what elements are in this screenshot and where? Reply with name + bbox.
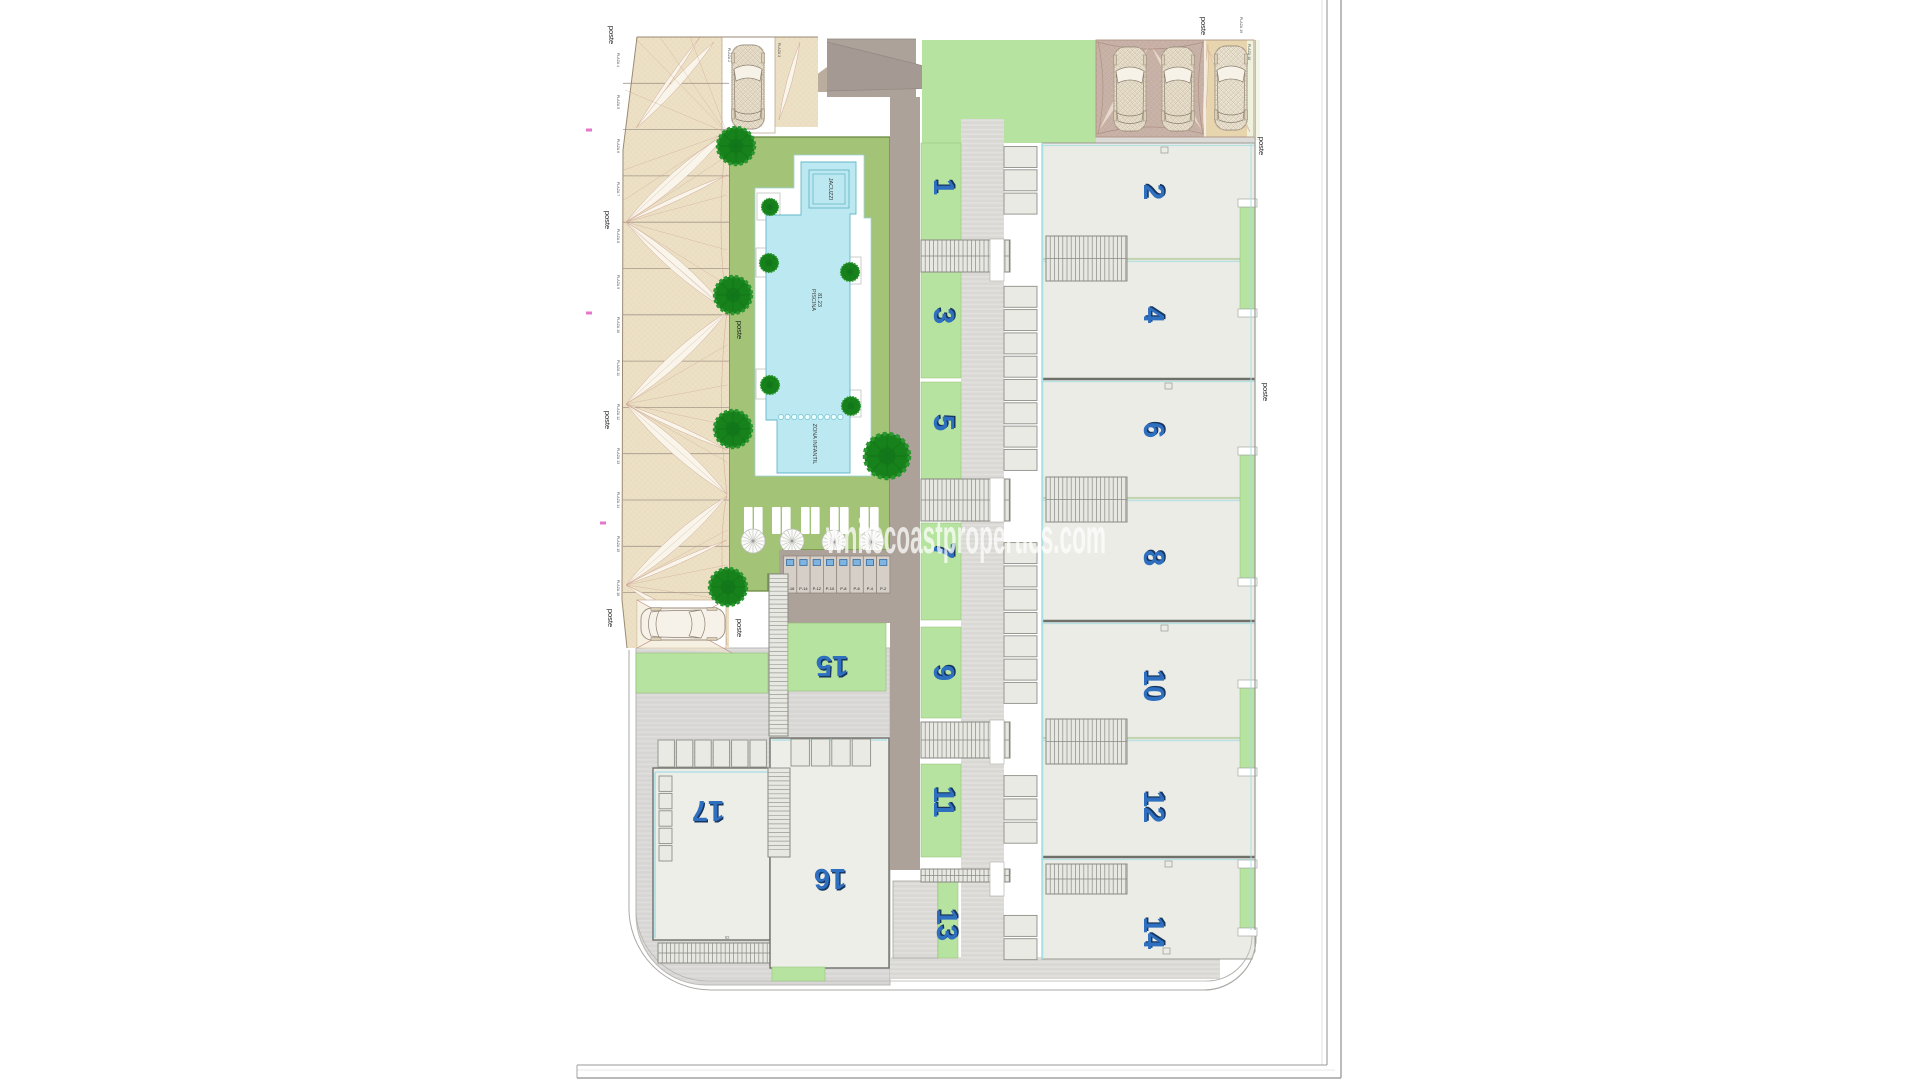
svg-text:poste: poste (603, 411, 612, 429)
svg-text:13: 13 (930, 909, 962, 941)
svg-text:PLAZA 4: PLAZA 4 (616, 53, 620, 67)
svg-text:15: 15 (816, 649, 848, 681)
svg-text:11: 11 (927, 787, 959, 818)
svg-text:17: 17 (692, 794, 724, 826)
svg-text:ZONA INFANTIL: ZONA INFANTIL (811, 424, 817, 465)
svg-text:PLAZA 2: PLAZA 2 (727, 48, 731, 62)
svg-text:P-14: P-14 (799, 586, 808, 591)
svg-text:poste: poste (1257, 137, 1266, 155)
svg-text:P-6: P-6 (853, 586, 860, 591)
svg-text:PLAZA 13: PLAZA 13 (616, 448, 620, 464)
svg-text:PLAZA 14: PLAZA 14 (616, 492, 620, 508)
svg-text:8: 8 (1137, 550, 1169, 566)
svg-text:10: 10 (1137, 670, 1169, 702)
svg-text:PLAZA 8: PLAZA 8 (616, 229, 620, 243)
svg-text:2: 2 (1137, 184, 1169, 200)
svg-text:PLAZA 6: PLAZA 6 (616, 139, 620, 153)
svg-text:P-8: P-8 (840, 586, 847, 591)
svg-text:1: 1 (927, 179, 959, 195)
svg-text:PLAZA 19: PLAZA 19 (1239, 17, 1243, 33)
svg-text:poste: poste (1199, 17, 1208, 35)
svg-text:JACUZZI: JACUZZI (827, 178, 833, 201)
svg-text:PLAZA 18: PLAZA 18 (1247, 44, 1251, 60)
svg-text:6: 6 (1137, 422, 1169, 438)
svg-text:poste: poste (606, 609, 615, 627)
svg-text:P-12: P-12 (813, 586, 822, 591)
svg-text:3: 3 (927, 308, 959, 324)
svg-text:poste: poste (735, 321, 744, 339)
svg-text:PLAZA 7: PLAZA 7 (616, 182, 620, 196)
svg-text:PLAZA 9: PLAZA 9 (616, 275, 620, 289)
svg-text:PLAZA 12: PLAZA 12 (616, 404, 620, 420)
svg-text:P-2: P-2 (880, 586, 887, 591)
svg-text:whitecoastproperties.com: whitecoastproperties.com (826, 511, 1106, 564)
svg-text:4: 4 (1137, 307, 1169, 323)
svg-text:P-10: P-10 (826, 586, 835, 591)
svg-text:P-4: P-4 (867, 586, 874, 591)
svg-text:81.23: 81.23 (816, 293, 822, 307)
svg-text:PLAZA 15: PLAZA 15 (616, 536, 620, 552)
svg-text:poste: poste (603, 211, 612, 229)
svg-text:IO: IO (725, 935, 730, 940)
svg-text:PLAZA 5: PLAZA 5 (616, 95, 620, 109)
svg-text:PLAZA 10: PLAZA 10 (616, 317, 620, 333)
svg-text:PISCINA: PISCINA (810, 289, 816, 311)
svg-text:12: 12 (1137, 791, 1169, 823)
svg-text:14: 14 (1137, 917, 1169, 949)
svg-text:PLAZA 16: PLAZA 16 (616, 580, 620, 596)
svg-text:PLAZA 11: PLAZA 11 (616, 360, 620, 376)
svg-text:5: 5 (927, 415, 959, 431)
svg-text:poste: poste (1261, 383, 1270, 401)
svg-text:poste: poste (607, 26, 616, 44)
svg-text:9: 9 (927, 665, 959, 681)
svg-text:16: 16 (814, 862, 846, 894)
svg-text:poste: poste (735, 619, 744, 637)
svg-text:PLAZA 3: PLAZA 3 (777, 43, 781, 57)
